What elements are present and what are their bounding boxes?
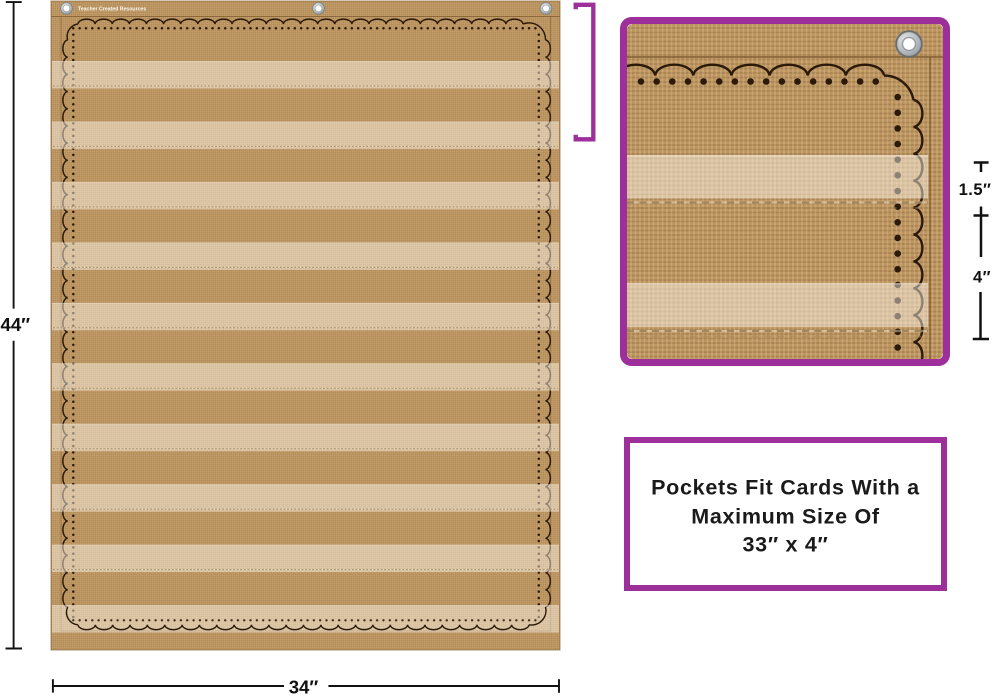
svg-text:34″: 34″ [289,677,319,696]
svg-text:Maximum Size Of: Maximum Size Of [691,505,880,529]
svg-text:44″: 44″ [1,314,31,335]
svg-text:1.5″: 1.5″ [959,181,992,199]
svg-text:33″ x 4″: 33″ x 4″ [743,533,829,557]
svg-text:4″: 4″ [973,269,991,287]
svg-text:Pockets Fit Cards With a: Pockets Fit Cards With a [651,476,920,500]
svg-text:Teacher Created Resources: Teacher Created Resources [78,7,146,13]
